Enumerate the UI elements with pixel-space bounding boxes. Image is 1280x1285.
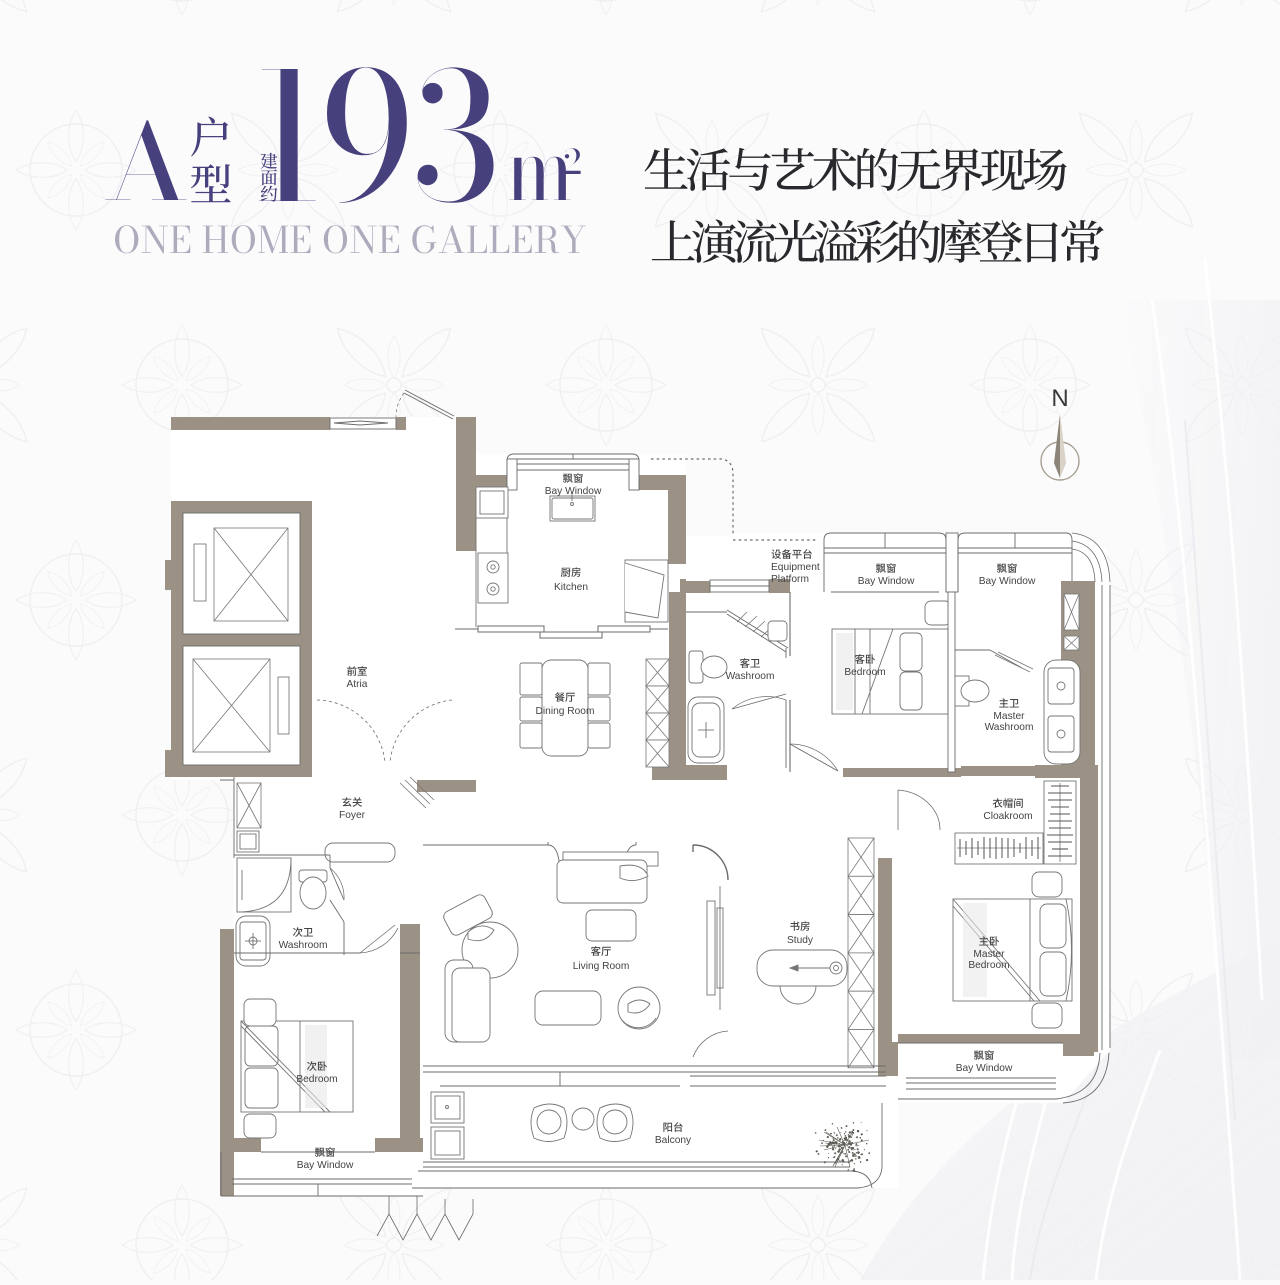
svg-text:Cloakroom: Cloakroom	[983, 811, 1032, 822]
svg-text:Bedroom: Bedroom	[296, 1074, 337, 1085]
svg-text:Washroom: Washroom	[726, 671, 775, 682]
svg-text:N: N	[1051, 385, 1068, 412]
svg-text:Study: Study	[787, 935, 814, 946]
svg-text:Kitchen: Kitchen	[554, 582, 588, 593]
svg-text:Equipment: Equipment	[771, 562, 820, 573]
svg-text:Bay Window: Bay Window	[545, 486, 602, 497]
svg-text:Bay Window: Bay Window	[858, 576, 915, 587]
svg-text:Bay Window: Bay Window	[979, 576, 1036, 587]
svg-text:Living Room: Living Room	[573, 961, 630, 972]
svg-text:Bedroom: Bedroom	[844, 667, 885, 678]
svg-text:Dining Room: Dining Room	[536, 706, 595, 717]
svg-text:Balcony: Balcony	[655, 1135, 692, 1146]
svg-text:Washroom: Washroom	[985, 722, 1034, 733]
svg-text:Foyer: Foyer	[339, 810, 366, 821]
svg-text:Platform: Platform	[771, 574, 809, 585]
svg-text:Atria: Atria	[347, 679, 368, 690]
svg-text:Bay Window: Bay Window	[297, 1160, 354, 1171]
svg-text:Master: Master	[973, 949, 1005, 960]
svg-text:Master: Master	[993, 711, 1025, 722]
svg-text:Washroom: Washroom	[279, 940, 328, 951]
svg-text:Bedroom: Bedroom	[968, 960, 1009, 971]
svg-text:Bay Window: Bay Window	[956, 1063, 1013, 1074]
